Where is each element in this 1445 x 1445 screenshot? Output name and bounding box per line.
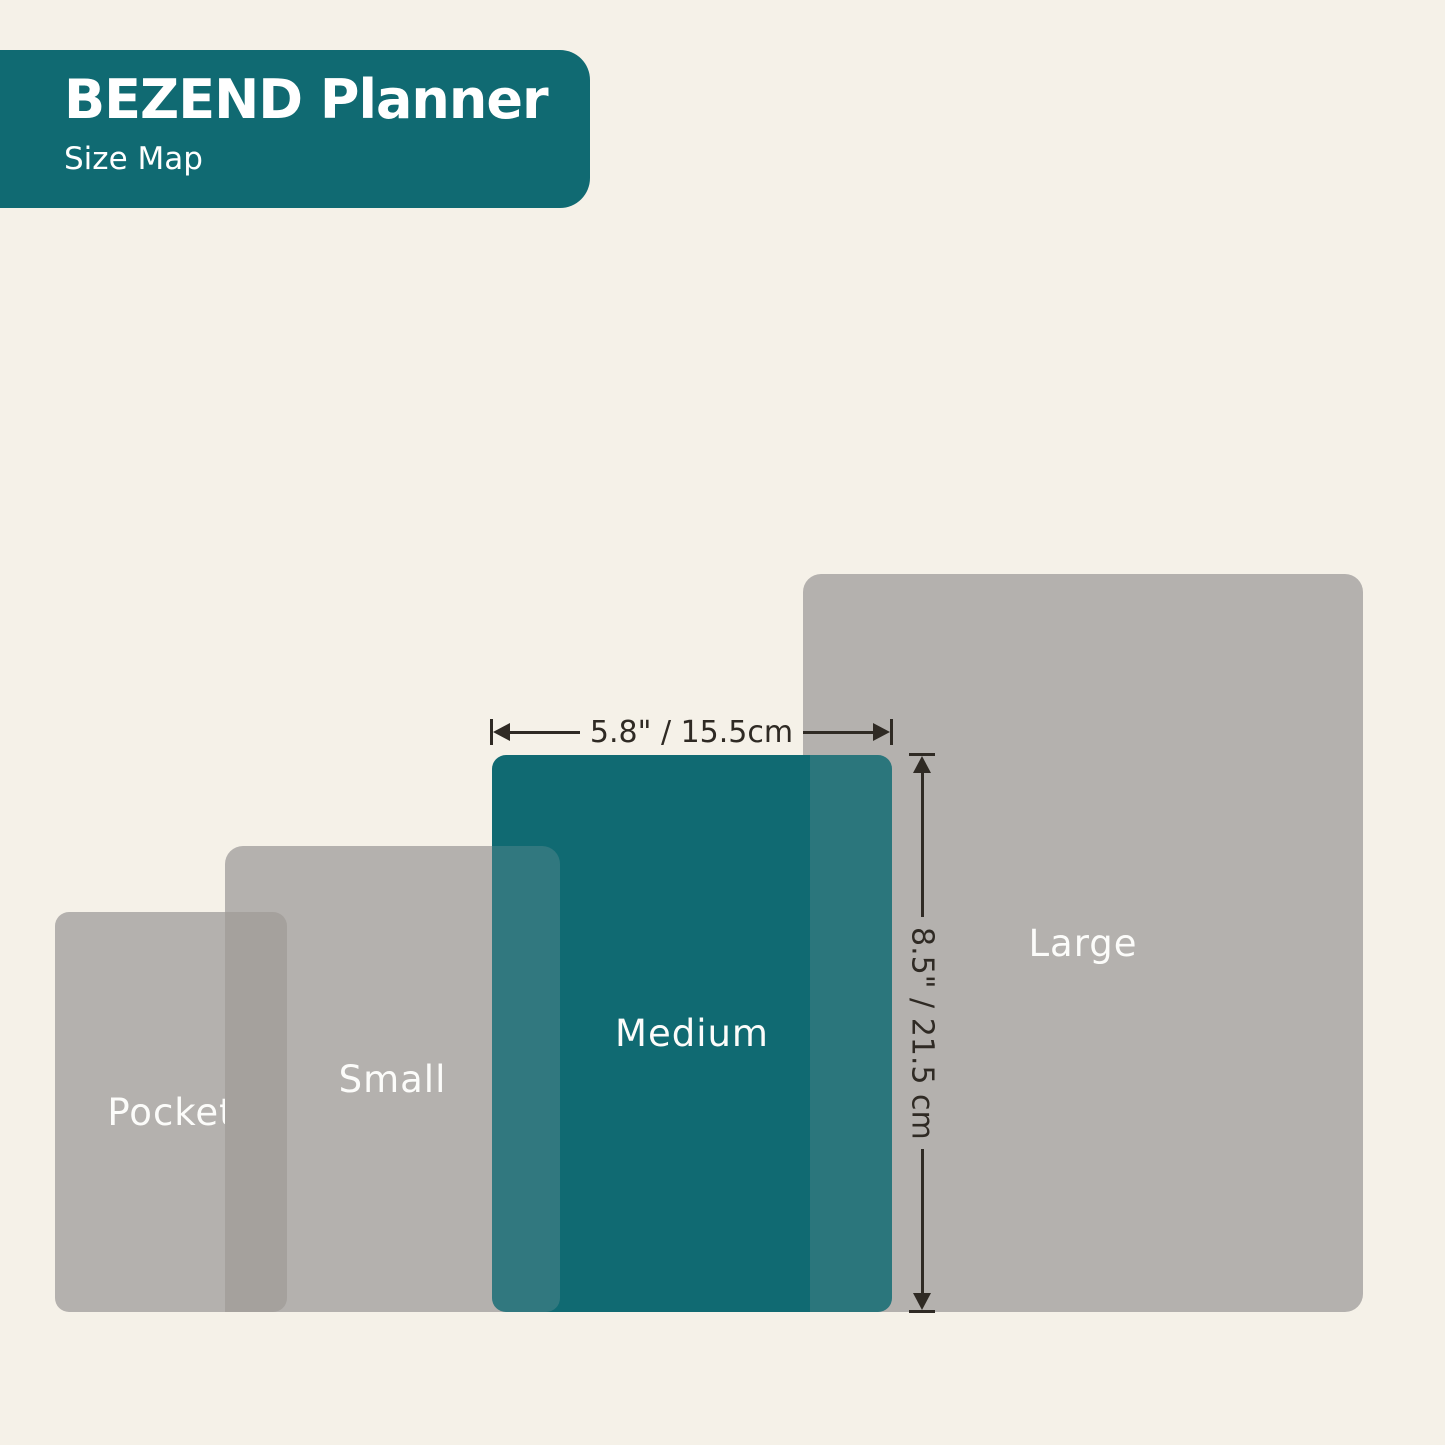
dimension-line	[803, 731, 873, 734]
page-subtitle: Size Map	[64, 141, 590, 177]
arrow-left-icon	[493, 723, 510, 741]
arrow-up-icon	[913, 756, 931, 773]
size-label-pocket: Pocket	[107, 1091, 234, 1134]
height-dimension: 8.5" / 21.5 cm	[900, 753, 944, 1313]
overlap-pocket-small	[225, 912, 287, 1312]
arrow-down-icon	[913, 1293, 931, 1310]
size-map-canvas: BEZEND Planner Size Map Large Small Pock…	[0, 0, 1445, 1445]
dimension-tick-right	[890, 719, 893, 745]
overlap-medium-large	[810, 755, 892, 1312]
size-label-large: Large	[1028, 922, 1137, 965]
dimension-line	[921, 1149, 924, 1293]
width-dimension: 5.8" / 15.5cm	[490, 710, 893, 754]
arrow-right-icon	[873, 723, 890, 741]
dimension-line	[510, 731, 580, 734]
overlap-small-medium	[492, 846, 560, 1312]
dimension-tick-bottom	[909, 1310, 935, 1313]
height-dimension-label: 8.5" / 21.5 cm	[905, 927, 940, 1140]
size-label-small: Small	[339, 1058, 447, 1101]
size-label-medium: Medium	[615, 1012, 769, 1055]
dimension-line	[921, 773, 924, 917]
header-banner: BEZEND Planner Size Map	[0, 50, 590, 208]
page-title: BEZEND Planner	[64, 68, 590, 131]
width-dimension-label: 5.8" / 15.5cm	[590, 715, 793, 750]
